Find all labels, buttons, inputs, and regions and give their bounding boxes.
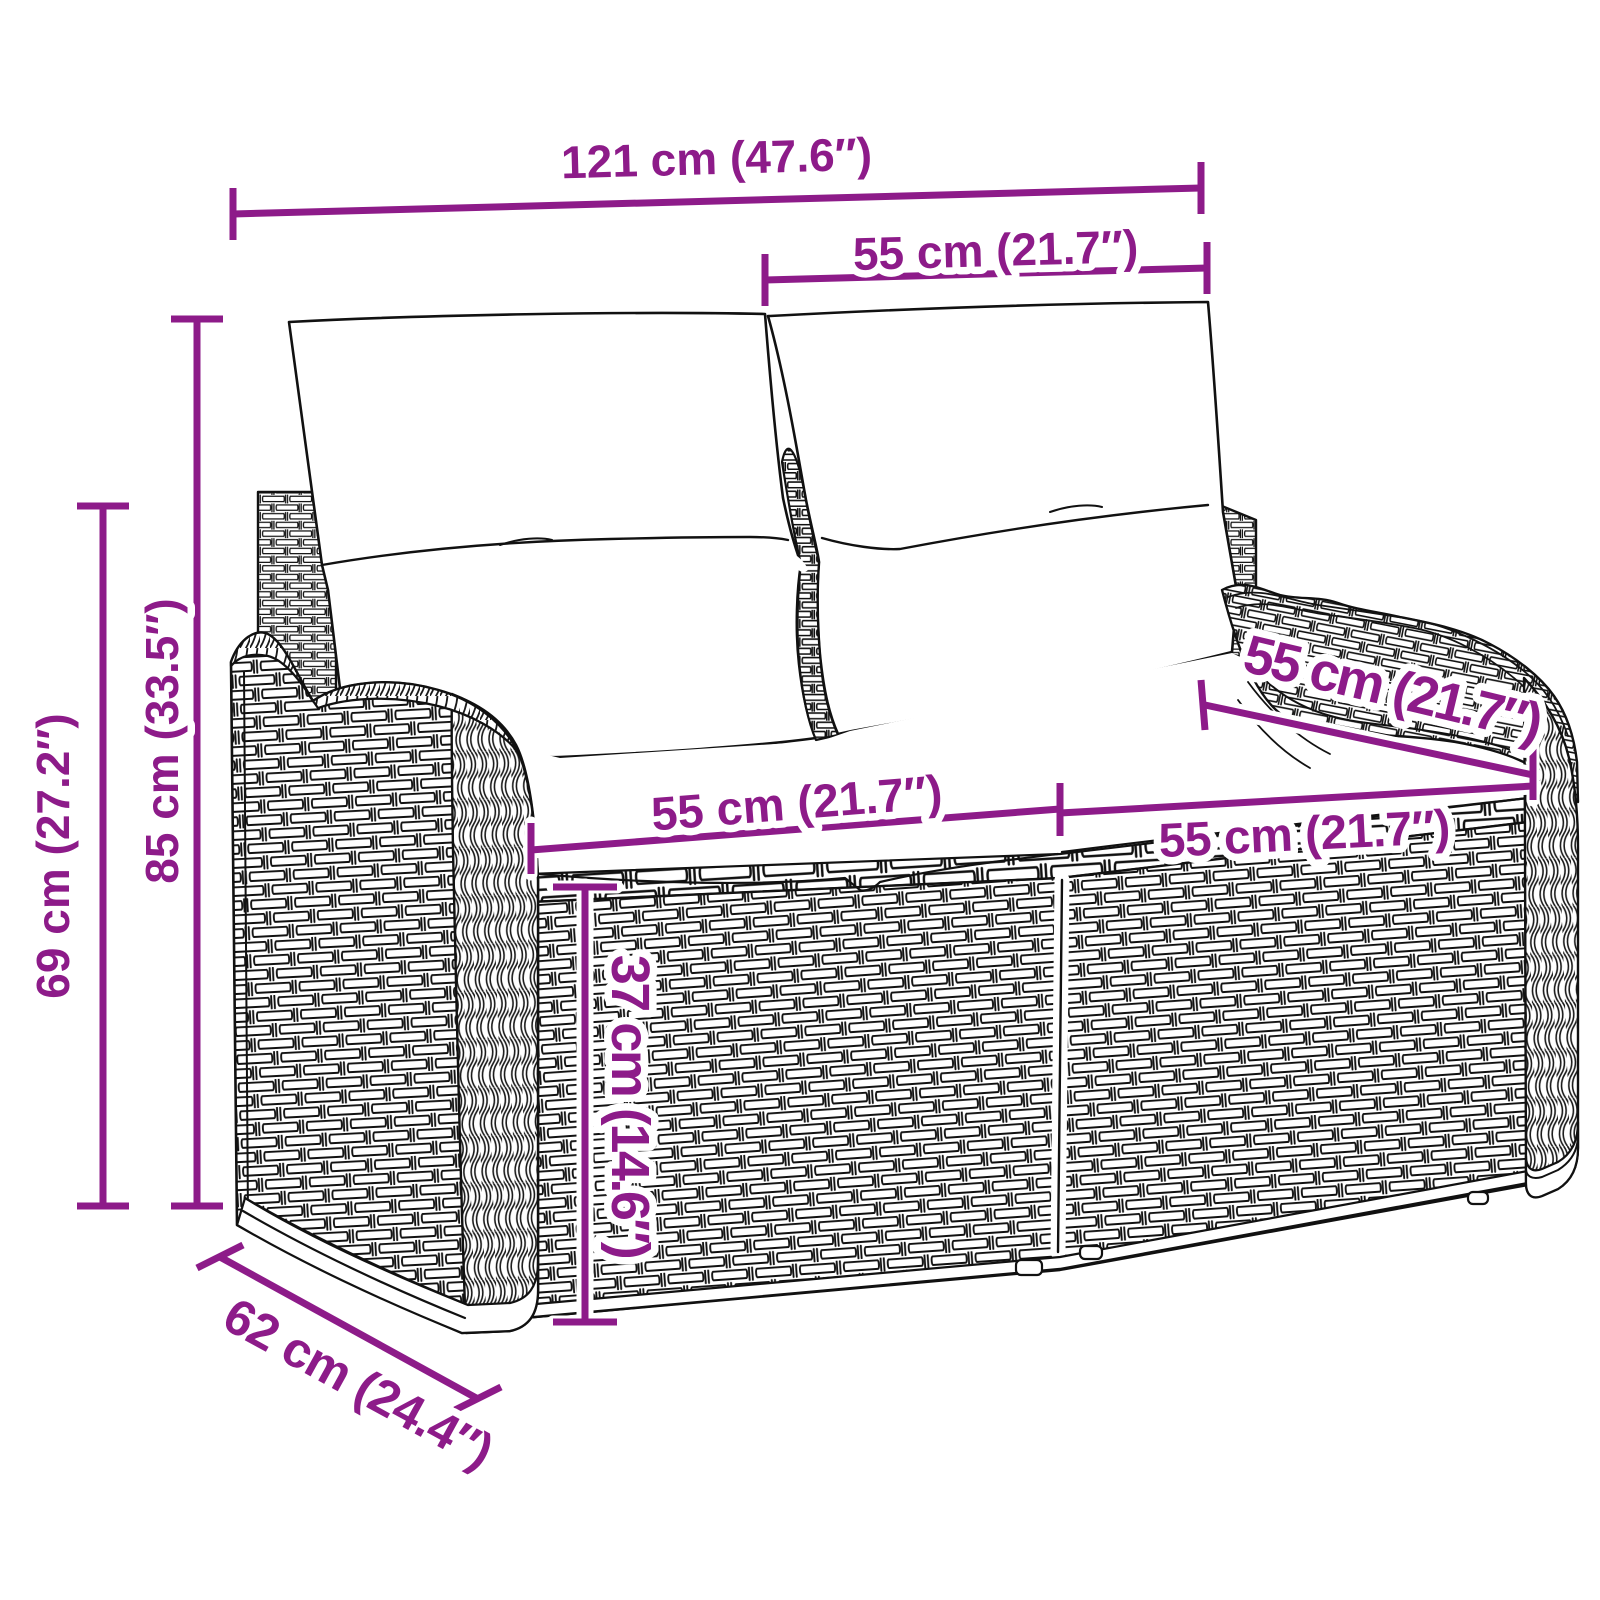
svg-text:85 cm (33.5″): 85 cm (33.5″) (136, 598, 188, 883)
svg-text:55 cm (21.7″): 55 cm (21.7″) (852, 220, 1139, 280)
svg-text:121 cm (47.6″): 121 cm (47.6″) (560, 128, 872, 189)
svg-text:37 cm (14.6″): 37 cm (14.6″) (600, 955, 660, 1258)
svg-text:69 cm (27.2″): 69 cm (27.2″) (27, 713, 79, 998)
